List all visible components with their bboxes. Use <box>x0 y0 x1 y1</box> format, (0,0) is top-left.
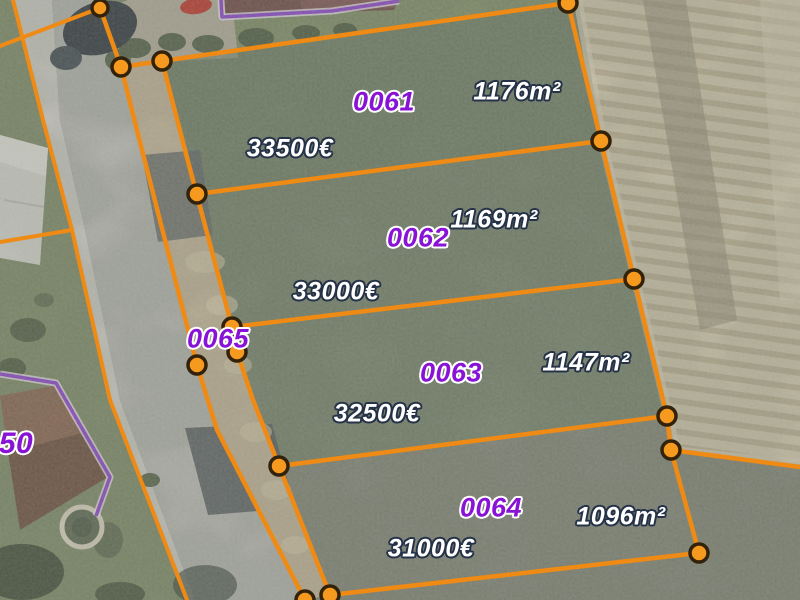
parcel-label-50[interactable]: 50 <box>0 427 33 461</box>
vertex-marker <box>296 591 314 600</box>
parcel-label-0061[interactable]: 0061 <box>353 87 415 118</box>
vertex-marker <box>625 270 643 288</box>
vertex-marker <box>559 0 577 12</box>
vertex-marker <box>92 0 108 16</box>
vertex-marker <box>112 58 130 76</box>
vertex-marker <box>270 457 288 475</box>
area-label-0061: 1176m² <box>473 78 560 107</box>
vertex-marker <box>658 407 676 425</box>
price-label-0064: 31000€ <box>388 535 474 564</box>
price-label-0062: 33000€ <box>293 278 379 307</box>
vertex-marker <box>188 356 206 374</box>
parcel-label-0062[interactable]: 0062 <box>387 223 449 254</box>
vertex-marker <box>690 544 708 562</box>
price-label-0063: 32500€ <box>334 400 420 429</box>
vertex-marker <box>662 441 680 459</box>
parcel-label-0065[interactable]: 0065 <box>187 324 249 355</box>
vertex-marker <box>321 586 339 600</box>
vertex-marker <box>188 185 206 203</box>
parcel-label-0064[interactable]: 0064 <box>460 493 522 524</box>
vertex-marker <box>153 52 171 70</box>
vertex-marker <box>592 132 610 150</box>
area-label-0063: 1147m² <box>542 349 629 378</box>
price-label-0061: 33500€ <box>247 135 333 164</box>
area-label-0062: 1169m² <box>450 206 537 235</box>
cadastral-map-view: 0061 0062 0063 0064 0065 50 1176m² 1169m… <box>0 0 800 600</box>
parcel-label-0063[interactable]: 0063 <box>420 358 482 389</box>
area-label-0064: 1096m² <box>576 503 665 532</box>
